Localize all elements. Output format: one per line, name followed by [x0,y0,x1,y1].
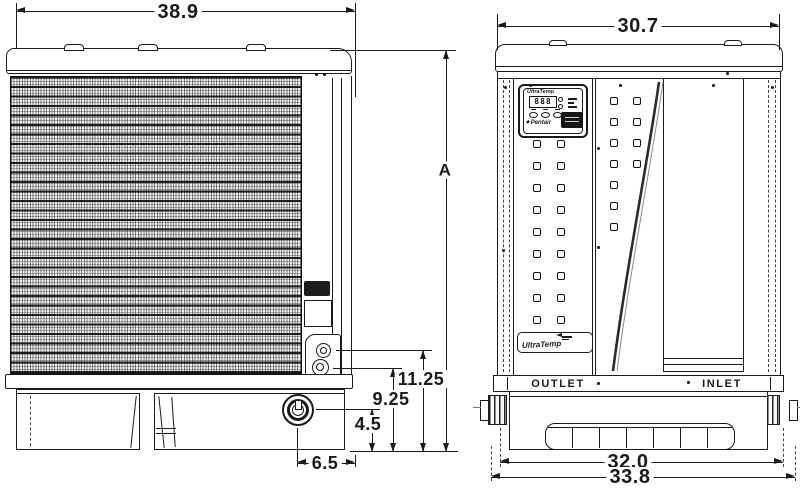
side-bottom-rim [5,374,353,389]
drawing-line [350,451,458,452]
drawing-line [509,396,768,397]
extension-line [775,80,776,372]
extension-line [795,446,796,481]
dimension-arrow-icon [16,7,25,13]
vent-hole [533,206,541,214]
vent-hole [533,294,541,302]
vent-hole [557,294,565,302]
vent-hole [557,228,565,236]
drawing-line [507,377,508,390]
drawing-line [592,78,593,375]
drawing-line [473,407,481,408]
vent-hole [610,97,618,105]
vent-hole [533,250,541,258]
dimension-arrow-icon [786,473,795,479]
vent-hole [557,140,565,148]
dimension-arrow-icon [420,443,426,452]
drawing-line [6,70,352,71]
screw-dot [504,86,507,89]
drawing-line [330,50,456,51]
side-label-sticker [304,281,330,296]
vent-hole [557,184,565,192]
drawing-line [770,377,771,390]
screw-dot [619,84,622,87]
fitting-circle [320,347,327,354]
dimension-arrow-icon [500,458,509,464]
lid-clip [64,44,84,51]
screw-dot [315,73,318,76]
drawing-line [446,50,447,452]
drawing-line [595,78,596,375]
base-foot-rib [653,427,654,448]
vent-hole [533,140,541,148]
dimension-arrow-icon [420,350,426,359]
vent-hole [557,162,565,170]
drawing-line [548,427,732,428]
vent-hole [557,272,565,280]
drawing-line [568,102,574,104]
fan-access-door [663,78,744,372]
drawing-line [568,106,577,108]
drawing-line [664,358,743,359]
vent-hole [557,206,565,214]
drawing-line [543,109,548,110]
extension-line [509,80,510,372]
dimension-arrow-icon [556,333,562,337]
dim-lower-connection: 9.25 [369,390,412,408]
extension-line [503,80,504,372]
dimension-arrow-icon [346,7,355,13]
outlet-label: OUTLET [531,378,585,390]
dim-front-width: 30.7 [615,16,662,36]
drawing-line [332,78,333,374]
front-top-lid [495,44,783,72]
screw-dot [597,382,600,385]
label-line [565,121,579,122]
screw-dot [597,246,600,249]
drawing-line [780,72,781,375]
lcd-display: 888 [529,96,557,108]
vent-hole [533,162,541,170]
heat-pump-dimensional-drawing: UltraTemp 888 Pentair UltraTemp [0,0,800,496]
panel-up-button[interactable] [558,97,563,102]
base-foot-rib [572,427,573,448]
dimension-arrow-icon [491,473,500,479]
base-foot-rib [707,427,708,448]
dimension-arrow-icon [346,459,355,465]
vent-hole [533,272,541,280]
panel-rating-label [561,112,583,128]
vent-hole [610,160,618,168]
dim-base-overall: 33.8 [607,467,654,487]
dim-drain-height: 4.5 [352,415,385,433]
vent-hole [633,160,641,168]
panel-mode-button[interactable] [541,112,550,118]
vent-hole [533,316,541,324]
drawing-line [664,364,743,365]
screw-dot [502,249,505,252]
dim-drain-offset: 6.5 [309,454,342,472]
panel-menu-button[interactable] [529,112,538,118]
screw-dot [771,86,774,89]
drawing-line [336,350,432,351]
dimension-arrow-icon [774,458,783,464]
pentair-logo: Pentair [526,120,551,126]
lid-clip [138,44,158,51]
vent-hole [610,139,618,147]
dim-side-width: 38.9 [155,2,202,22]
screw-dot [597,147,600,150]
vent-hole [557,316,565,324]
vent-hole [633,97,641,105]
extension-line [783,428,784,467]
outlet-union-nut [488,395,507,425]
part-outline [295,400,302,410]
extension-line [768,80,769,372]
drawing-line [156,428,176,429]
vent-hole [633,118,641,126]
side-access-plate [304,300,332,327]
drawing-line [531,109,536,110]
lid-clip [724,40,742,46]
vent-hole [610,202,618,210]
dim-upper-connection: 11.25 [395,370,448,388]
screw-dot [712,84,715,87]
drawing-line [351,76,352,374]
dimension-arrow-icon [770,22,779,28]
fitting-circle [316,363,324,371]
vent-hole [557,250,565,258]
vent-hole [610,118,618,126]
screw-dot [687,381,690,384]
base-center-leg [139,393,155,450]
control-panel-brand: UltraTemp [527,90,554,96]
base-foot-rib [626,427,627,448]
drawing-line [779,14,780,50]
dimension-arrow-icon [369,443,375,452]
dimension-arrow-icon [297,459,306,465]
vent-hole [533,184,541,192]
drawing-line [562,336,572,338]
screw-dot [323,73,326,76]
dimension-arrow-icon [443,50,449,59]
vent-hole [610,223,618,231]
extension-line [30,396,31,446]
evaporator-coil-grille [10,76,302,374]
drawing-line [497,14,498,50]
vent-hole [633,139,641,147]
dimension-arrow-icon [390,443,396,452]
screw-dot [726,72,729,75]
drawing-line [568,98,577,100]
drawing-line [341,78,342,374]
lid-clip [549,40,567,46]
inlet-union-stub [789,400,798,421]
drawing-line [562,339,569,340]
dim-overall-height: A [436,162,455,179]
inlet-label: INLET [702,378,742,390]
label-line [565,117,579,118]
base-foot-rib [680,427,681,448]
vent-hole [533,228,541,236]
drawing-line [423,350,424,452]
drawing-line [513,78,514,375]
drawing-line [495,66,783,67]
lid-clip [246,44,266,51]
drawing-line [156,433,176,434]
dimension-arrow-icon [497,22,506,28]
drawing-line [497,72,498,375]
screw-dot [529,84,532,87]
vent-hole [610,181,618,189]
dimension-arrow-icon [443,443,449,452]
drawing-line [355,455,356,467]
drawing-line [555,109,560,110]
base-foot-rib [599,427,600,448]
